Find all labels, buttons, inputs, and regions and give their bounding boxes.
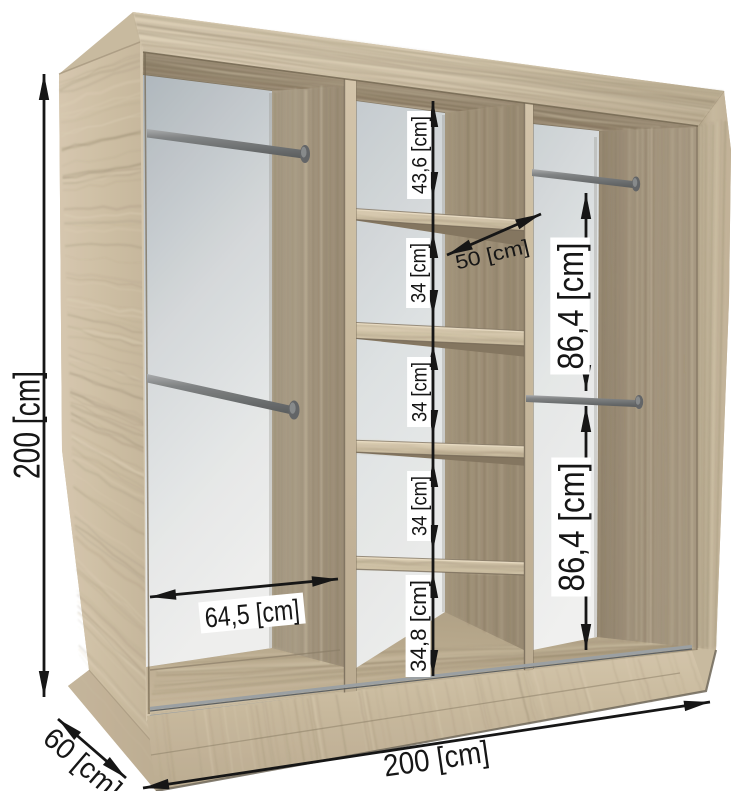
svg-text:200 [cm]: 200 [cm] [6,371,47,479]
svg-text:86,4 [cm]: 86,4 [cm] [550,243,591,370]
svg-text:86,4 [cm]: 86,4 [cm] [551,463,592,592]
svg-text:43,6 [cm]: 43,6 [cm] [409,116,432,194]
svg-text:34 [cm]: 34 [cm] [409,476,432,536]
svg-text:34 [cm]: 34 [cm] [408,243,431,303]
svg-text:34,8 [cm]: 34,8 [cm] [406,580,431,672]
svg-text:34 [cm]: 34 [cm] [409,362,432,422]
